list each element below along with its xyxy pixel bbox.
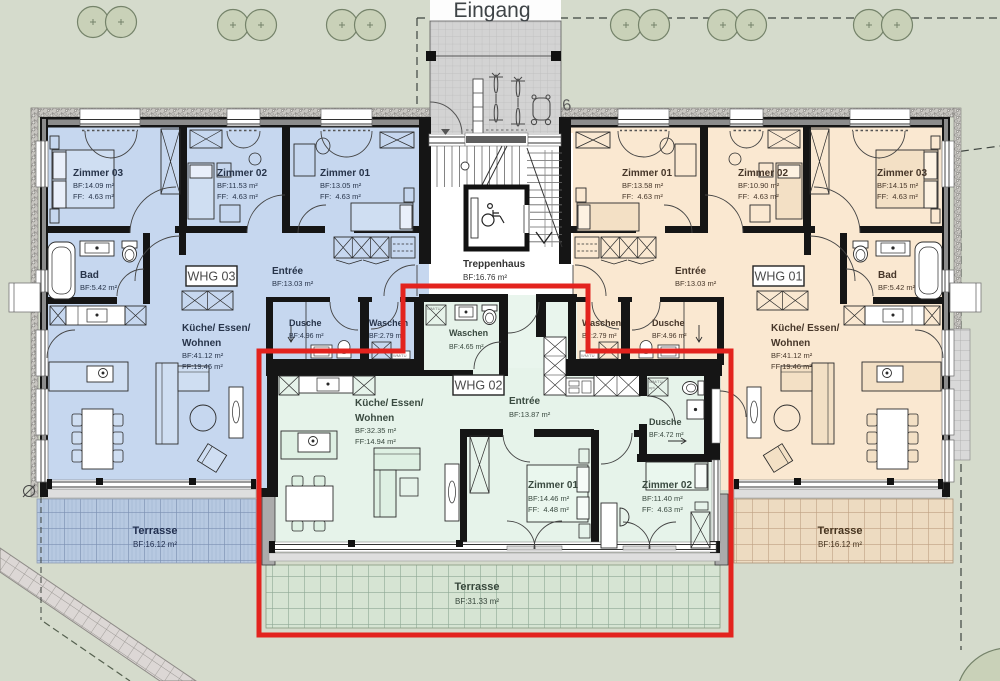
svg-text:opt.: opt. <box>649 385 656 390</box>
svg-text:Zimmer 01: Zimmer 01 <box>622 168 672 179</box>
svg-text:Eingang: Eingang <box>453 0 530 22</box>
svg-text:BF:11.53 m²: BF:11.53 m² <box>217 181 258 190</box>
svg-text:Wohnen: Wohnen <box>771 338 810 349</box>
svg-text:BF:14.46 m²: BF:14.46 m² <box>528 494 570 503</box>
svg-text:Küche/ Essen/: Küche/ Essen/ <box>355 398 424 409</box>
svg-text:BF:13.05 m²: BF:13.05 m² <box>320 181 362 190</box>
svg-text:Entrée: Entrée <box>509 396 541 407</box>
svg-text:Dusche: Dusche <box>289 318 322 328</box>
svg-text:BF:16.76 m²: BF:16.76 m² <box>463 273 507 282</box>
svg-text:WHG 01: WHG 01 <box>755 270 803 284</box>
svg-text:Terrasse: Terrasse <box>132 525 177 537</box>
svg-text:BF:13.87 m²: BF:13.87 m² <box>509 410 551 419</box>
svg-text:Wohnen: Wohnen <box>182 338 221 349</box>
svg-text:Zimmer 03: Zimmer 03 <box>877 168 927 179</box>
svg-text:Wohnen: Wohnen <box>355 413 394 424</box>
svg-text:Zimmer 03: Zimmer 03 <box>73 168 123 179</box>
svg-text:WM/TU: WM/TU <box>649 379 663 384</box>
svg-text:BF:4.72 m²: BF:4.72 m² <box>649 432 684 439</box>
svg-text:Terrasse: Terrasse <box>454 581 499 593</box>
svg-text:BF:4.96 m²: BF:4.96 m² <box>652 333 687 340</box>
svg-text:WM/TU: WM/TU <box>393 353 407 358</box>
svg-text:BF:31.33 m²: BF:31.33 m² <box>455 597 499 606</box>
svg-text:FF:14.94 m²: FF:14.94 m² <box>355 437 396 446</box>
svg-text:Bad: Bad <box>878 270 897 281</box>
svg-text:WM/TU: WM/TU <box>581 353 595 358</box>
svg-text:BF:2.79 m²: BF:2.79 m² <box>369 333 404 340</box>
svg-text:WHG 03: WHG 03 <box>188 270 236 284</box>
svg-text:BF:4.65 m²: BF:4.65 m² <box>449 344 484 351</box>
svg-text:BF:5.42 m²: BF:5.42 m² <box>878 283 916 292</box>
svg-text:Dusche: Dusche <box>649 417 682 427</box>
svg-text:BF:14.15 m²: BF:14.15 m² <box>877 181 919 190</box>
svg-text:FF: 4.63 m²: FF: 4.63 m² <box>320 192 361 201</box>
svg-text:BF:16.12 m²: BF:16.12 m² <box>133 540 177 549</box>
svg-text:FF: 4.48 m²: FF: 4.48 m² <box>528 505 569 514</box>
svg-text:BF:13.03 m²: BF:13.03 m² <box>272 279 314 288</box>
svg-text:Entrée: Entrée <box>272 266 304 277</box>
svg-text:FF: 4.63 m²: FF: 4.63 m² <box>738 192 779 201</box>
svg-text:Zimmer 02: Zimmer 02 <box>642 480 692 491</box>
svg-text:Zimmer 01: Zimmer 01 <box>528 480 578 491</box>
svg-text:BF:13.03 m²: BF:13.03 m² <box>675 279 717 288</box>
svg-text:Küche/ Essen/: Küche/ Essen/ <box>182 323 251 334</box>
svg-text:Zimmer 01: Zimmer 01 <box>320 168 370 179</box>
svg-text:BF:11.40 m²: BF:11.40 m² <box>642 494 683 503</box>
svg-text:FF: 4.63 m²: FF: 4.63 m² <box>217 192 258 201</box>
svg-text:BF:10.90 m²: BF:10.90 m² <box>738 181 780 190</box>
svg-text:WHG 02: WHG 02 <box>455 379 503 393</box>
svg-text:BF:41.12 m²: BF:41.12 m² <box>182 351 224 360</box>
svg-text:BF:14.09 m²: BF:14.09 m² <box>73 181 115 190</box>
svg-text:Zimmer 02: Zimmer 02 <box>217 168 267 179</box>
svg-text:FF: 4.63 m²: FF: 4.63 m² <box>622 192 663 201</box>
svg-text:BF:32.35 m²: BF:32.35 m² <box>355 426 397 435</box>
svg-text:BF:13.58 m²: BF:13.58 m² <box>622 181 664 190</box>
svg-text:Terrasse: Terrasse <box>817 525 862 537</box>
svg-text:FF: 4.63 m²: FF: 4.63 m² <box>73 192 114 201</box>
svg-text:Bad: Bad <box>80 270 99 281</box>
svg-text:Küche/ Essen/: Küche/ Essen/ <box>771 323 840 334</box>
svg-text:Waschen: Waschen <box>449 328 488 338</box>
svg-text:BF:4.96 m²: BF:4.96 m² <box>289 333 324 340</box>
svg-text:BF:5.42 m²: BF:5.42 m² <box>80 283 118 292</box>
svg-text:BF:41.12 m²: BF:41.12 m² <box>771 351 813 360</box>
svg-text:FF: 4.63 m²: FF: 4.63 m² <box>642 505 683 514</box>
svg-text:FF:19.46 m²: FF:19.46 m² <box>182 362 223 371</box>
svg-text:FF:19.46 m²: FF:19.46 m² <box>771 362 812 371</box>
svg-text:WM/TU: WM/TU <box>427 306 441 311</box>
svg-text:FF: 4.63 m²: FF: 4.63 m² <box>877 192 918 201</box>
svg-text:Dusche: Dusche <box>652 318 685 328</box>
svg-text:Zimmer 02: Zimmer 02 <box>738 168 788 179</box>
svg-text:Treppenhaus: Treppenhaus <box>463 259 526 270</box>
svg-text:Entrée: Entrée <box>675 266 707 277</box>
svg-text:BF:16.12 m²: BF:16.12 m² <box>818 540 862 549</box>
